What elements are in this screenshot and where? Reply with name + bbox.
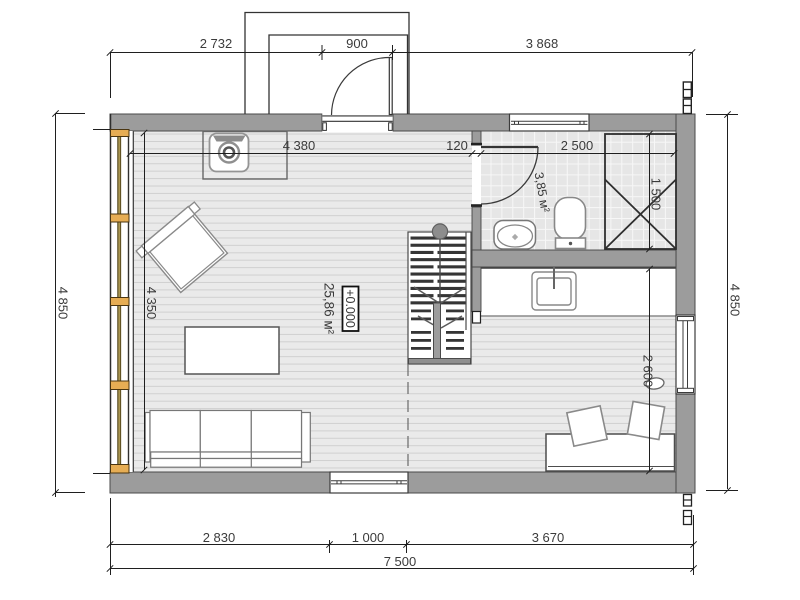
svg-text:4 380: 4 380 <box>283 138 316 153</box>
svg-text:2 600: 2 600 <box>641 355 656 388</box>
svg-text:7 500: 7 500 <box>384 554 417 569</box>
svg-text:2 500: 2 500 <box>561 138 594 153</box>
svg-text:900: 900 <box>346 36 368 51</box>
svg-text:1 000: 1 000 <box>352 530 385 545</box>
svg-text:120: 120 <box>446 138 468 153</box>
svg-text:4 350: 4 350 <box>144 287 159 320</box>
svg-text:+0.000: +0.000 <box>343 289 357 328</box>
svg-text:4 850: 4 850 <box>56 287 71 320</box>
svg-text:4 850: 4 850 <box>728 284 743 317</box>
svg-text:2 830: 2 830 <box>203 530 236 545</box>
svg-text:2 732: 2 732 <box>200 36 233 51</box>
svg-text:3 670: 3 670 <box>532 530 565 545</box>
svg-text:1 500: 1 500 <box>649 178 664 211</box>
svg-text:25,86 м²: 25,86 м² <box>322 283 337 335</box>
svg-text:3 868: 3 868 <box>526 36 559 51</box>
